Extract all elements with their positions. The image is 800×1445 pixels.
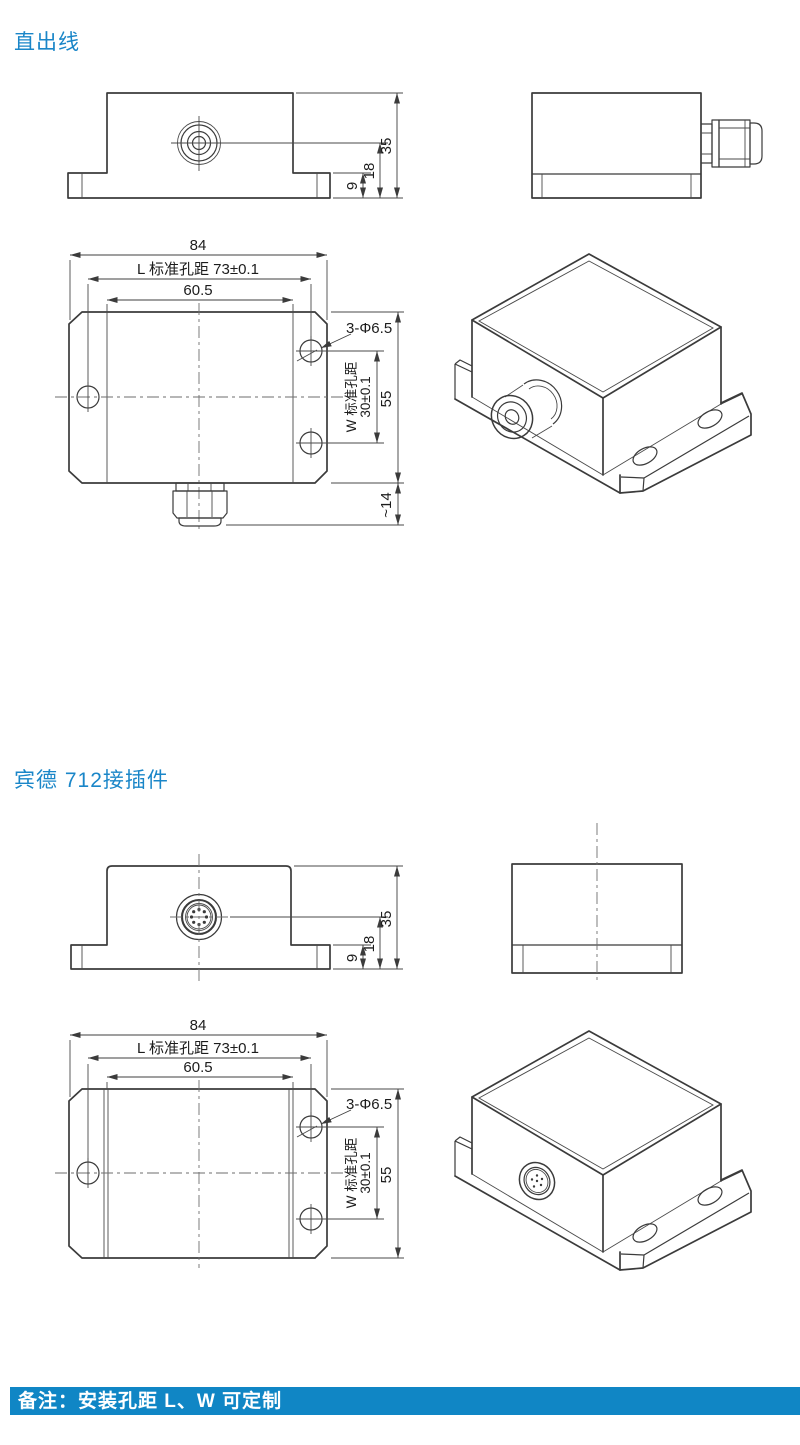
- connector-iso: [513, 1156, 562, 1206]
- dim-front-height-total: 35: [378, 911, 395, 928]
- straight-cable-drawing: 35 18 9: [0, 60, 800, 560]
- dim-top-holes: 3-Φ6.5: [346, 1096, 392, 1113]
- section-title-binder-connector: 宾德 712接插件: [14, 764, 169, 794]
- top-view-straight: 84 L 标准孔距 73±0.1 60.5 3-Φ6.5 W 标准孔距 30±0…: [55, 237, 404, 532]
- footer-note-banner: 备注：安装孔距 L、W 可定制: [10, 1387, 800, 1415]
- dim-front-height-mid: 18: [361, 163, 378, 180]
- dim-top-width-total: 84: [190, 237, 207, 254]
- dim-top-holes: 3-Φ6.5: [346, 320, 392, 337]
- dim-top-depth-total: 55: [378, 1167, 395, 1184]
- isometric-view-connector: [455, 1031, 751, 1270]
- dim-top-body-width: 60.5: [183, 282, 212, 299]
- dim-top-pitch-w-value: 30±0.1: [358, 1152, 373, 1193]
- cable-gland-iso: [483, 380, 561, 446]
- dim-front-height-base: 9: [344, 954, 361, 962]
- side-view-straight: [532, 93, 762, 198]
- dim-top-gland-depth: ~14: [378, 492, 395, 517]
- dim-top-pitch-w-label: W 标准孔距: [344, 1138, 359, 1209]
- side-view-connector: [512, 823, 682, 981]
- front-view-connector: 35 18 9: [71, 854, 403, 984]
- binder-connector-drawing: 35 18 9 84 L 标准孔距 73±0.1: [0, 810, 800, 1310]
- dim-front-height-base: 9: [344, 182, 361, 190]
- dim-top-pitch-l: L 标准孔距 73±0.1: [137, 1040, 259, 1057]
- dim-front-height-mid: 18: [361, 936, 378, 953]
- footer-note-text: 备注：安装孔距 L、W 可定制: [18, 1391, 282, 1412]
- dim-top-pitch-w-value: 30±0.1: [358, 376, 373, 417]
- dim-front-height-total: 35: [378, 138, 395, 155]
- front-view-straight: 35 18 9: [68, 93, 403, 198]
- dim-top-pitch-l: L 标准孔距 73±0.1: [137, 261, 259, 278]
- dim-top-depth-total: 55: [378, 391, 395, 408]
- dim-top-width-total: 84: [190, 1017, 207, 1034]
- datasheet-page: 直出线: [0, 0, 800, 1445]
- top-view-connector: 84 L 标准孔距 73±0.1 60.5 3-Φ6.5 W 标准孔距 30±0…: [55, 1017, 404, 1268]
- isometric-view-straight: [455, 254, 751, 493]
- dim-top-body-width: 60.5: [183, 1059, 212, 1076]
- section-title-straight-cable: 直出线: [14, 26, 80, 56]
- dim-top-pitch-w-label: W 标准孔距: [344, 362, 359, 433]
